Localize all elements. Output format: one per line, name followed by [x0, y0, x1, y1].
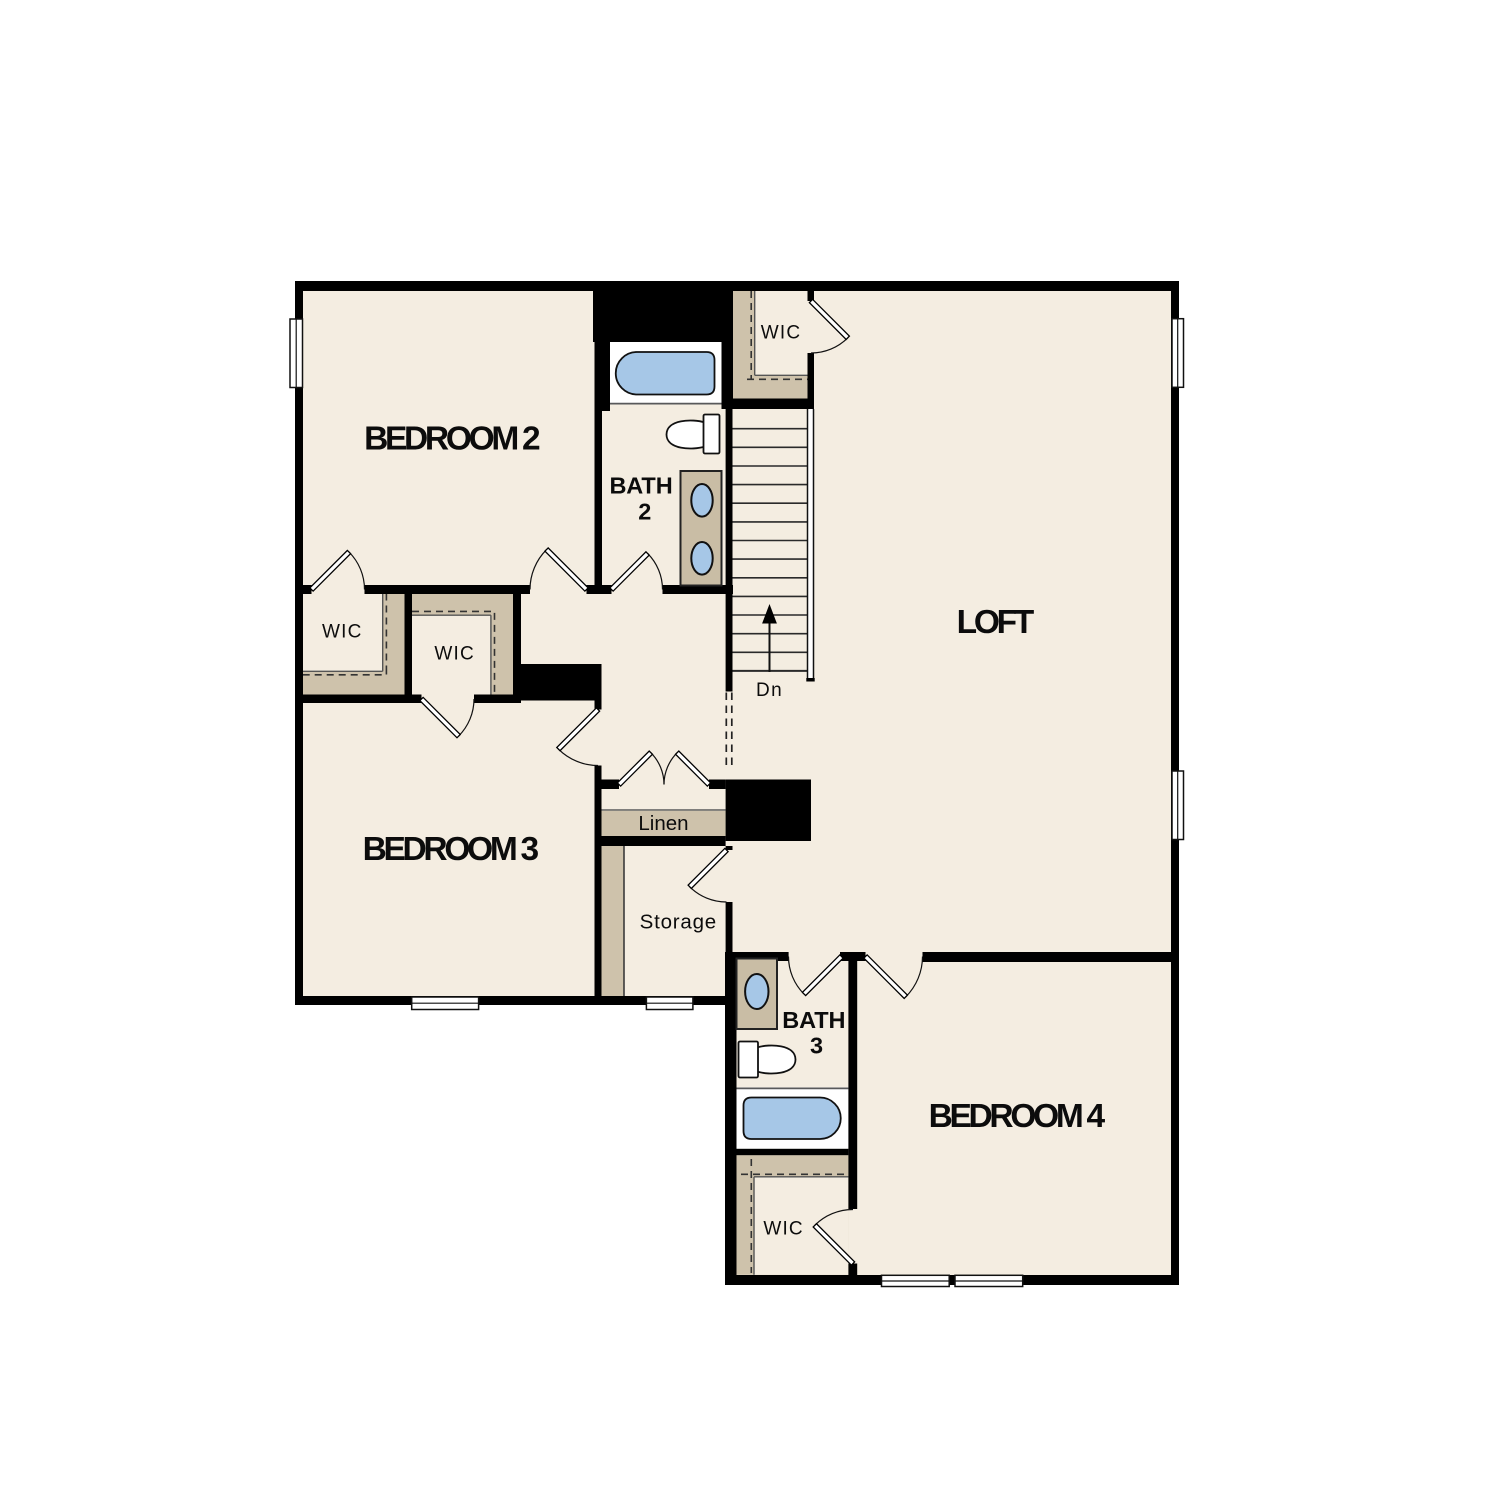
svg-text:Storage: Storage [640, 910, 717, 933]
svg-text:WIC: WIC [322, 621, 363, 642]
svg-text:WIC: WIC [763, 1218, 804, 1239]
svg-text:2: 2 [638, 498, 651, 524]
svg-text:BATH: BATH [609, 472, 672, 498]
svg-text:WIC: WIC [761, 323, 802, 344]
svg-text:Dn: Dn [756, 680, 783, 701]
svg-text:WIC: WIC [434, 643, 475, 664]
svg-text:BEDROOM 4: BEDROOM 4 [929, 1098, 1106, 1135]
svg-text:BATH: BATH [782, 1007, 845, 1033]
svg-text:Linen: Linen [638, 812, 688, 835]
svg-text:LOFT: LOFT [957, 604, 1035, 641]
svg-text:BEDROOM 3: BEDROOM 3 [363, 831, 539, 868]
svg-text:BEDROOM 2: BEDROOM 2 [364, 421, 540, 458]
svg-text:3: 3 [810, 1032, 823, 1058]
